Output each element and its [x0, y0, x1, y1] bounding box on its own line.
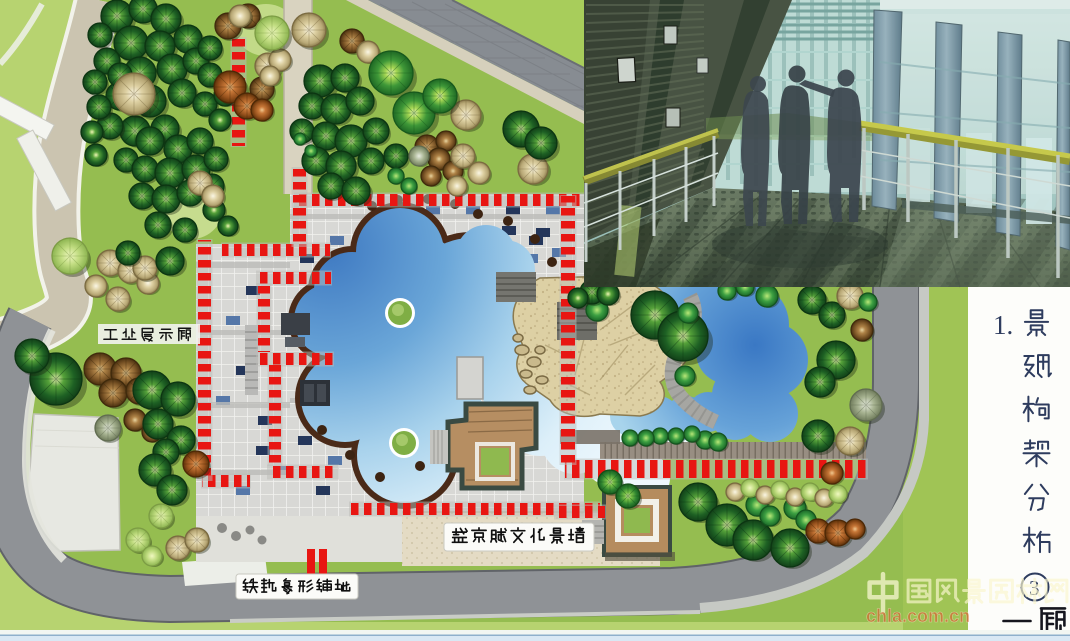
- svg-text:1.: 1.: [993, 310, 1013, 340]
- svg-text:chla.com.cn: chla.com.cn: [866, 606, 970, 626]
